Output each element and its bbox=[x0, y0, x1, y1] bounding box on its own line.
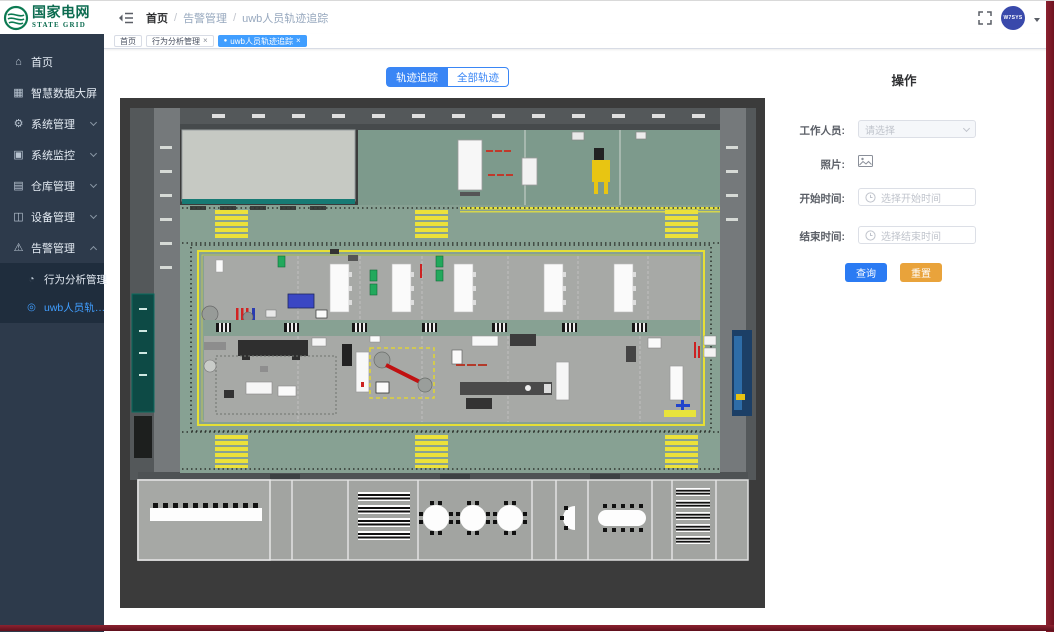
tab-uwb-track[interactable]: ● uwb人员轨迹追踪 × bbox=[218, 35, 307, 47]
warehouse-icon: ▤ bbox=[11, 179, 26, 192]
photo-label: 照片: bbox=[735, 157, 845, 172]
sidebar-item-label: 设备管理 bbox=[31, 209, 75, 225]
worker-select-placeholder: 请选择 bbox=[865, 122, 895, 137]
user-menu-caret-icon[interactable] bbox=[1034, 18, 1040, 22]
chevron-down-icon bbox=[963, 124, 970, 131]
analysis-icon: ◔ bbox=[24, 274, 39, 285]
gear-icon: ⚙ bbox=[11, 117, 26, 130]
production-area bbox=[191, 245, 716, 431]
logo-subtitle: STATE GRID bbox=[32, 22, 90, 29]
sidebar-fold-icon[interactable] bbox=[118, 11, 134, 25]
tab-label: 首页 bbox=[120, 36, 136, 47]
chevron-down-icon bbox=[90, 118, 97, 125]
breadcrumb-separator: / bbox=[174, 12, 177, 24]
start-time-label: 开始时间: bbox=[735, 191, 845, 206]
window-frame-right bbox=[1046, 1, 1054, 632]
track-view-toggle: 轨迹追踪 全部轨迹 bbox=[386, 67, 509, 87]
sidebar-item-home[interactable]: ⌂ 首页 bbox=[0, 46, 104, 77]
photo-placeholder-icon[interactable] bbox=[858, 155, 873, 168]
sidebar-item-label: 仓库管理 bbox=[31, 178, 75, 194]
close-icon[interactable]: × bbox=[203, 37, 208, 45]
alarm-submenu: ◔ 行为分析管理 ◎ uwb人员轨… bbox=[0, 263, 104, 323]
chevron-down-icon bbox=[90, 149, 97, 156]
app-window: 国家电网 STATE GRID ⌂ 首页 ▦ 智慧数据大屏 ⚙ 系统管理 ▣ 系… bbox=[0, 0, 1054, 631]
sidebar-item-device-mgmt[interactable]: ◫ 设备管理 bbox=[0, 201, 104, 232]
header-actions: W7SYS bbox=[978, 6, 1040, 30]
main-content: 轨迹追踪 全部轨迹 bbox=[104, 50, 1054, 632]
sidebar-item-alarm-mgmt[interactable]: ⚠ 告警管理 bbox=[0, 232, 104, 263]
sidebar-item-label: uwb人员轨… bbox=[44, 300, 105, 315]
floor-plan-map bbox=[120, 98, 765, 608]
sidebar-item-label: 智慧数据大屏 bbox=[31, 85, 97, 101]
home-icon: ⌂ bbox=[11, 56, 26, 68]
breadcrumb-separator: / bbox=[233, 12, 236, 24]
query-button[interactable]: 查询 bbox=[845, 263, 887, 282]
logo-title: 国家电网 bbox=[32, 7, 90, 21]
worker-select[interactable]: 请选择 bbox=[858, 120, 976, 138]
avatar[interactable]: W7SYS bbox=[1001, 6, 1025, 30]
sidebar-item-behavior-analysis[interactable]: ◔ 行为分析管理 bbox=[0, 265, 104, 293]
breadcrumb-uwb-track: uwb人员轨迹追踪 bbox=[242, 10, 328, 26]
ops-panel-title: 操作 bbox=[864, 70, 944, 89]
sidebar-menu: ⌂ 首页 ▦ 智慧数据大屏 ⚙ 系统管理 ▣ 系统监控 ▤ 仓库管理 bbox=[0, 46, 104, 323]
worker-label: 工作人员: bbox=[735, 123, 845, 138]
top-rooms bbox=[182, 130, 720, 213]
sidebar-item-warehouse-mgmt[interactable]: ▤ 仓库管理 bbox=[0, 170, 104, 201]
top-header: 首页 / 告警管理 / uwb人员轨迹追踪 W7SYS bbox=[104, 1, 1054, 34]
sidebar-item-system-mgmt[interactable]: ⚙ 系统管理 bbox=[0, 108, 104, 139]
sidebar-item-data-screen[interactable]: ▦ 智慧数据大屏 bbox=[0, 77, 104, 108]
tab-behavior-analysis[interactable]: 行为分析管理 × bbox=[146, 35, 214, 47]
clock-icon bbox=[865, 230, 876, 241]
sidebar: 国家电网 STATE GRID ⌂ 首页 ▦ 智慧数据大屏 ⚙ 系统管理 ▣ 系… bbox=[0, 1, 104, 632]
sidebar-item-label: 行为分析管理 bbox=[44, 272, 107, 287]
window-frame-bottom bbox=[0, 625, 1054, 631]
sidebar-item-system-monitor[interactable]: ▣ 系统监控 bbox=[0, 139, 104, 170]
tab-home[interactable]: 首页 bbox=[114, 35, 142, 47]
active-dot-icon: ● bbox=[224, 38, 228, 44]
breadcrumb: 首页 / 告警管理 / uwb人员轨迹追踪 bbox=[146, 10, 328, 26]
end-time-label: 结束时间: bbox=[735, 229, 845, 244]
start-time-placeholder: 选择开始时间 bbox=[881, 190, 941, 205]
dashboard-icon: ▦ bbox=[11, 86, 26, 99]
alert-icon: ⚠ bbox=[11, 241, 26, 254]
state-grid-emblem-icon bbox=[3, 5, 29, 31]
tab-label: 行为分析管理 bbox=[152, 36, 200, 47]
opened-tabs-bar: 首页 行为分析管理 × ● uwb人员轨迹追踪 × bbox=[104, 34, 1054, 49]
toggle-track-trace[interactable]: 轨迹追踪 bbox=[386, 67, 447, 87]
end-time-placeholder: 选择结束时间 bbox=[881, 228, 941, 243]
uwb-track-icon: ◎ bbox=[24, 302, 39, 313]
floor-plan-3d-view[interactable] bbox=[120, 98, 765, 608]
chevron-up-icon bbox=[90, 245, 97, 252]
sidebar-item-label: 首页 bbox=[31, 54, 53, 70]
toggle-all-tracks[interactable]: 全部轨迹 bbox=[447, 67, 509, 87]
tab-label: uwb人员轨迹追踪 bbox=[230, 36, 293, 47]
sidebar-item-label: 系统管理 bbox=[31, 116, 75, 132]
breadcrumb-home[interactable]: 首页 bbox=[146, 10, 168, 26]
office-annex bbox=[138, 480, 748, 560]
end-time-input[interactable]: 选择结束时间 bbox=[858, 226, 976, 244]
sidebar-item-label: 系统监控 bbox=[31, 147, 75, 163]
chevron-down-icon bbox=[90, 180, 97, 187]
logo: 国家电网 STATE GRID bbox=[0, 1, 104, 34]
close-icon[interactable]: × bbox=[296, 37, 301, 45]
chevron-down-icon bbox=[90, 211, 97, 218]
breadcrumb-alarm-mgmt[interactable]: 告警管理 bbox=[183, 10, 227, 26]
fullscreen-icon[interactable] bbox=[978, 11, 992, 25]
clock-icon bbox=[865, 192, 876, 203]
reset-button[interactable]: 重置 bbox=[900, 263, 942, 282]
monitor-icon: ▣ bbox=[11, 148, 26, 161]
sidebar-item-uwb-track[interactable]: ◎ uwb人员轨… bbox=[0, 293, 104, 321]
device-icon: ◫ bbox=[11, 210, 26, 223]
sidebar-item-label: 告警管理 bbox=[31, 240, 75, 256]
start-time-input[interactable]: 选择开始时间 bbox=[858, 188, 976, 206]
